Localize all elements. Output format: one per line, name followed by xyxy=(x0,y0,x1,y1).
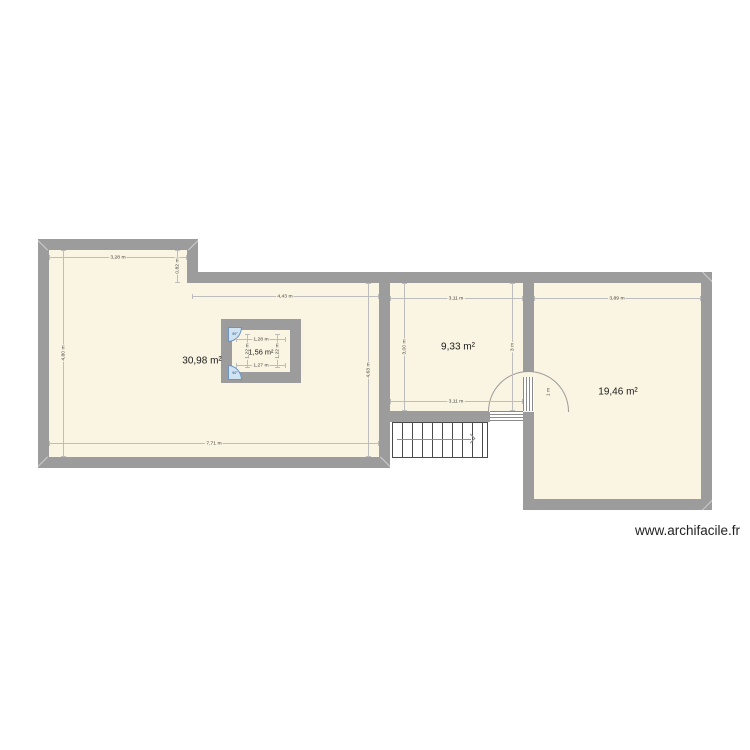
dim-label-left-corridor: 4,43 m xyxy=(276,293,294,299)
room-area-label-left: 30,98 m² xyxy=(182,356,221,367)
closet-door-angle-bottom-label: 90° xyxy=(232,371,237,375)
dim-label-left-bottom: 7,71 m xyxy=(205,440,223,446)
closet-door-angle-top-label: 90° xyxy=(232,332,237,336)
dim-label-closet-bottom: 1,27 m xyxy=(252,362,270,368)
room-left-fill-a[interactable] xyxy=(49,250,187,457)
wall-right-room-bottom[interactable] xyxy=(523,499,712,510)
closet-wall-right[interactable] xyxy=(290,319,301,383)
room-area-label-closet: 1,56 m² xyxy=(248,348,273,356)
dim-label-left-top: 3,28 m xyxy=(109,254,127,260)
dim-label-closet-right: 1,22 m xyxy=(274,342,280,360)
dim-label-right-top: 3,89 m xyxy=(608,295,626,301)
wall-right-outer[interactable] xyxy=(701,272,712,510)
dim-label-left-right: 4,63 m xyxy=(365,361,371,379)
door-width-label: 1 m xyxy=(545,387,551,398)
door-leaf-horizontal[interactable] xyxy=(490,411,523,422)
wall-top-left[interactable] xyxy=(38,239,198,250)
door-leaf-vertical[interactable] xyxy=(523,377,534,411)
dim-label-middle-bottom: 3,11 m xyxy=(447,398,464,404)
wall-corridor-top[interactable] xyxy=(187,272,390,283)
dim-label-middle-top: 3,11 m xyxy=(447,295,464,301)
dim-label-left-left: 4,80 m xyxy=(60,344,66,362)
watermark: www.archifacile.fr xyxy=(520,523,740,538)
wall-left-room-bottom[interactable] xyxy=(38,457,390,468)
stairs-direction-line xyxy=(397,439,471,440)
dim-label-middle-right: 3 m xyxy=(509,342,515,353)
dim-label-middle-left: 3,00 m xyxy=(401,338,407,356)
room-area-label-middle: 9,33 m² xyxy=(441,342,475,353)
room-area-label-right: 19,46 m² xyxy=(598,387,637,398)
wall-left-outer[interactable] xyxy=(38,239,49,468)
dim-label-closet-top: 1,28 m xyxy=(252,336,270,342)
floor-plan-canvas: 90° 90° 1 m 3,28 m 0,82 m 4,43 m 4,80 m … xyxy=(0,0,750,750)
wall-top-band[interactable] xyxy=(379,272,712,283)
dim-label-left-notch: 0,82 m xyxy=(174,257,180,275)
wall-left-room-right[interactable] xyxy=(379,272,390,468)
